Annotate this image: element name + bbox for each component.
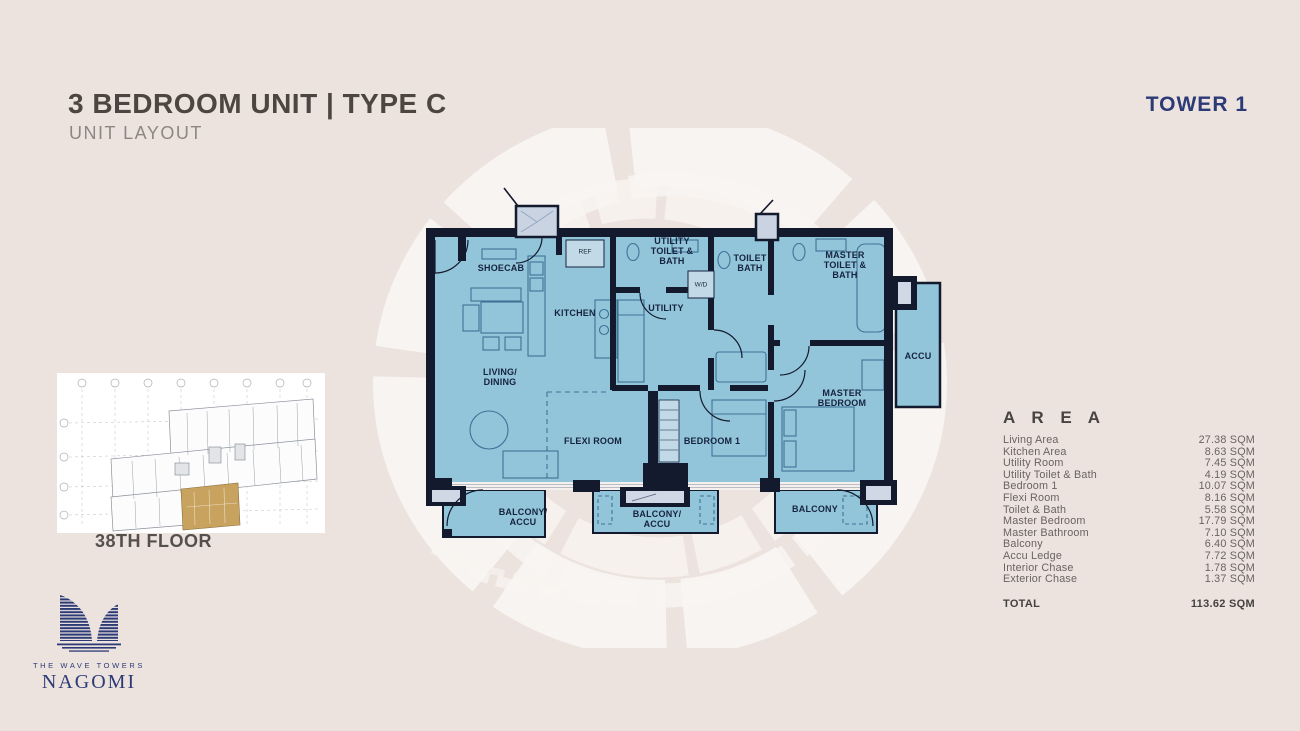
page-subtitle: UNIT LAYOUT — [69, 123, 203, 144]
table-total-row: TOTAL 113.62 SQM — [1003, 598, 1255, 610]
row-label: Accu Ledge — [1003, 551, 1062, 563]
table-row: Living Area 27.38 SQM — [1003, 435, 1255, 447]
room-label-utility: UTILITY — [648, 303, 683, 313]
slide: 3 BEDROOM UNIT | TYPE C UNIT LAYOUT TOWE… — [0, 0, 1300, 731]
floor-label: 38TH FLOOR — [95, 531, 212, 552]
area-table: A R E A Living Area 27.38 SQM Kitchen Ar… — [1003, 408, 1255, 610]
room-label-ref: REF — [579, 248, 592, 255]
room-label-toilet-bath: TOILET BATH — [733, 253, 766, 273]
room-label-utility-toilet-bath: UTILITY TOILET & BATH — [651, 236, 693, 266]
row-label: Exterior Chase — [1003, 574, 1077, 586]
room-label-accu: ACCU — [905, 351, 932, 361]
table-row: Exterior Chase 1.37 SQM — [1003, 574, 1255, 586]
page-title: 3 BEDROOM UNIT | TYPE C — [68, 88, 447, 120]
area-table-header: A R E A — [1003, 408, 1255, 428]
row-value: 17.79 SQM — [1199, 516, 1255, 528]
room-label-kitchen: KITCHEN — [554, 308, 595, 318]
room-label-balcony-accu-mid: BALCONY/ ACCU — [633, 509, 682, 529]
floor-plan-drawing — [370, 128, 970, 648]
room-label-master-toilet-bath: MASTER TOILET & BATH — [824, 250, 866, 280]
tower-label: TOWER 1 — [1100, 93, 1248, 117]
total-value: 113.62 SQM — [1191, 598, 1255, 610]
row-label: Living Area — [1003, 435, 1059, 447]
row-value: 27.38 SQM — [1199, 435, 1255, 447]
logo-tagline: THE WAVE TOWERS — [27, 661, 151, 670]
room-label-shoecab: SHOECAB — [478, 263, 524, 273]
room-label-wd: W/D — [695, 281, 708, 288]
room-label-flexi-room: FLEXI ROOM — [564, 436, 622, 446]
key-plan-drawing — [57, 373, 325, 533]
room-label-living-dining: LIVING/ DINING — [483, 367, 517, 387]
plan-closet — [659, 400, 679, 462]
room-label-bedroom-1: BEDROOM 1 — [684, 436, 740, 446]
total-label: TOTAL — [1003, 598, 1040, 610]
room-label-master-bedroom: MASTER BEDROOM — [818, 388, 866, 408]
table-row: Accu Ledge 7.72 SQM — [1003, 551, 1255, 563]
row-value: 1.37 SQM — [1205, 574, 1255, 586]
row-value: 8.16 SQM — [1205, 493, 1255, 505]
row-value: 7.72 SQM — [1205, 551, 1255, 563]
wave-towers-icon — [55, 592, 123, 654]
row-label: Flexi Room — [1003, 493, 1060, 505]
room-label-balcony: BALCONY — [792, 504, 838, 514]
table-row: Master Bedroom 17.79 SQM — [1003, 516, 1255, 528]
key-plan — [57, 373, 325, 533]
brand-logo: THE WAVE TOWERS NAGOMI — [27, 592, 151, 694]
room-label-balcony-accu-left: BALCONY/ ACCU — [499, 507, 548, 527]
row-label: Master Bedroom — [1003, 516, 1086, 528]
logo-brand: NAGOMI — [27, 671, 151, 694]
table-row: Flexi Room 8.16 SQM — [1003, 493, 1255, 505]
